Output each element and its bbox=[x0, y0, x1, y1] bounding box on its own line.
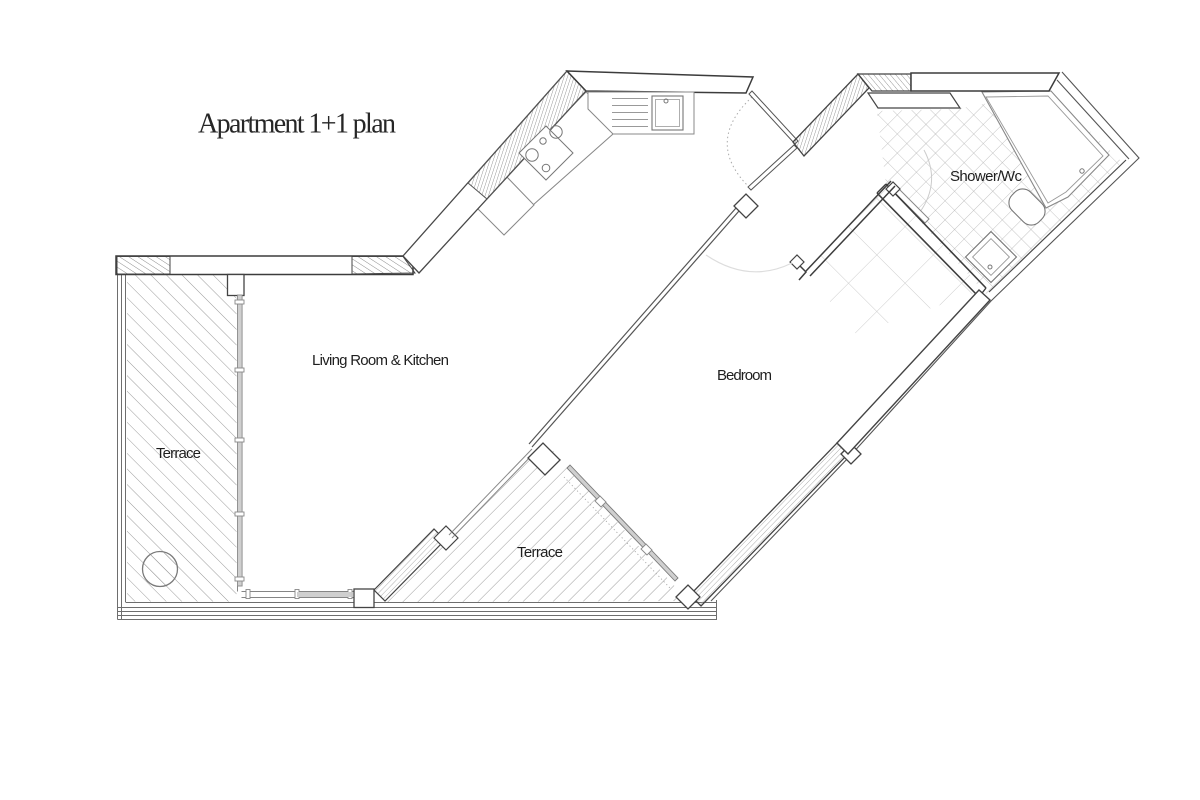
svg-text:Terrace: Terrace bbox=[517, 544, 563, 561]
svg-text:Bedroom: Bedroom bbox=[717, 367, 772, 384]
svg-text:Terrace: Terrace bbox=[156, 445, 201, 462]
svg-text:Living Room & Kitchen: Living Room & Kitchen bbox=[312, 352, 449, 369]
svg-text:Apartment 1+1 plan: Apartment 1+1 plan bbox=[198, 109, 396, 140]
svg-text:Shower/Wc: Shower/Wc bbox=[950, 168, 1023, 185]
